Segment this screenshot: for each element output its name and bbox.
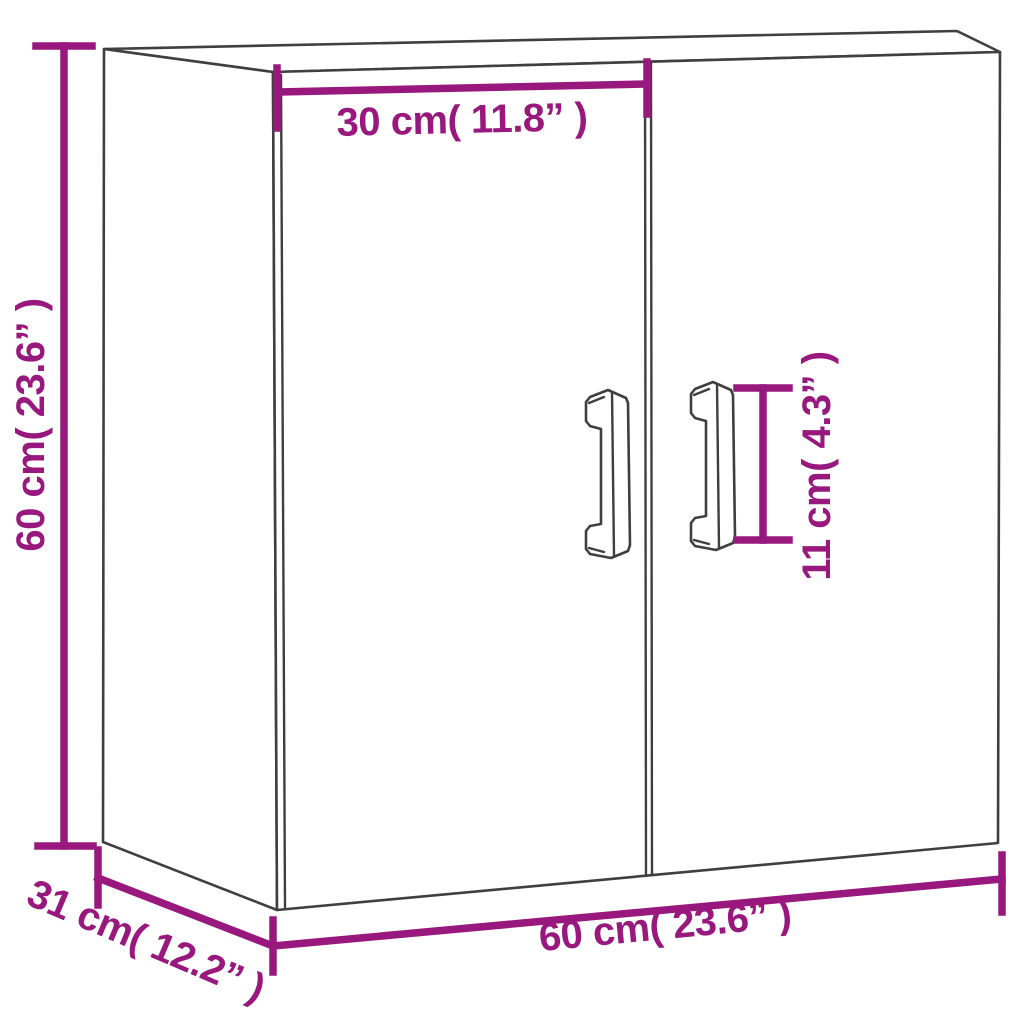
cabinet-front-face <box>273 52 1000 910</box>
dimension-height: 60 cm( 23.6” ) <box>9 46 93 846</box>
total-width-label: 60 cm( 23.6” ) <box>537 892 793 960</box>
door-width-label: 30 cm( 11.8” ) <box>336 95 588 145</box>
door-gap-line-left <box>645 63 646 876</box>
cabinet-side-panel <box>103 49 277 910</box>
diagram-canvas: 30 cm( 11.8” ) 60 cm( 23.6” ) 11 cm( 4.3… <box>0 0 1024 1024</box>
door-gap-line-right <box>651 63 652 875</box>
height-label: 60 cm( 23.6” ) <box>9 298 53 551</box>
handle-height-label: 11 cm( 4.3” ) <box>795 351 839 580</box>
cabinet-outline <box>103 31 1000 910</box>
cabinet-dimension-diagram: 30 cm( 11.8” ) 60 cm( 23.6” ) 11 cm( 4.3… <box>0 0 1024 1024</box>
